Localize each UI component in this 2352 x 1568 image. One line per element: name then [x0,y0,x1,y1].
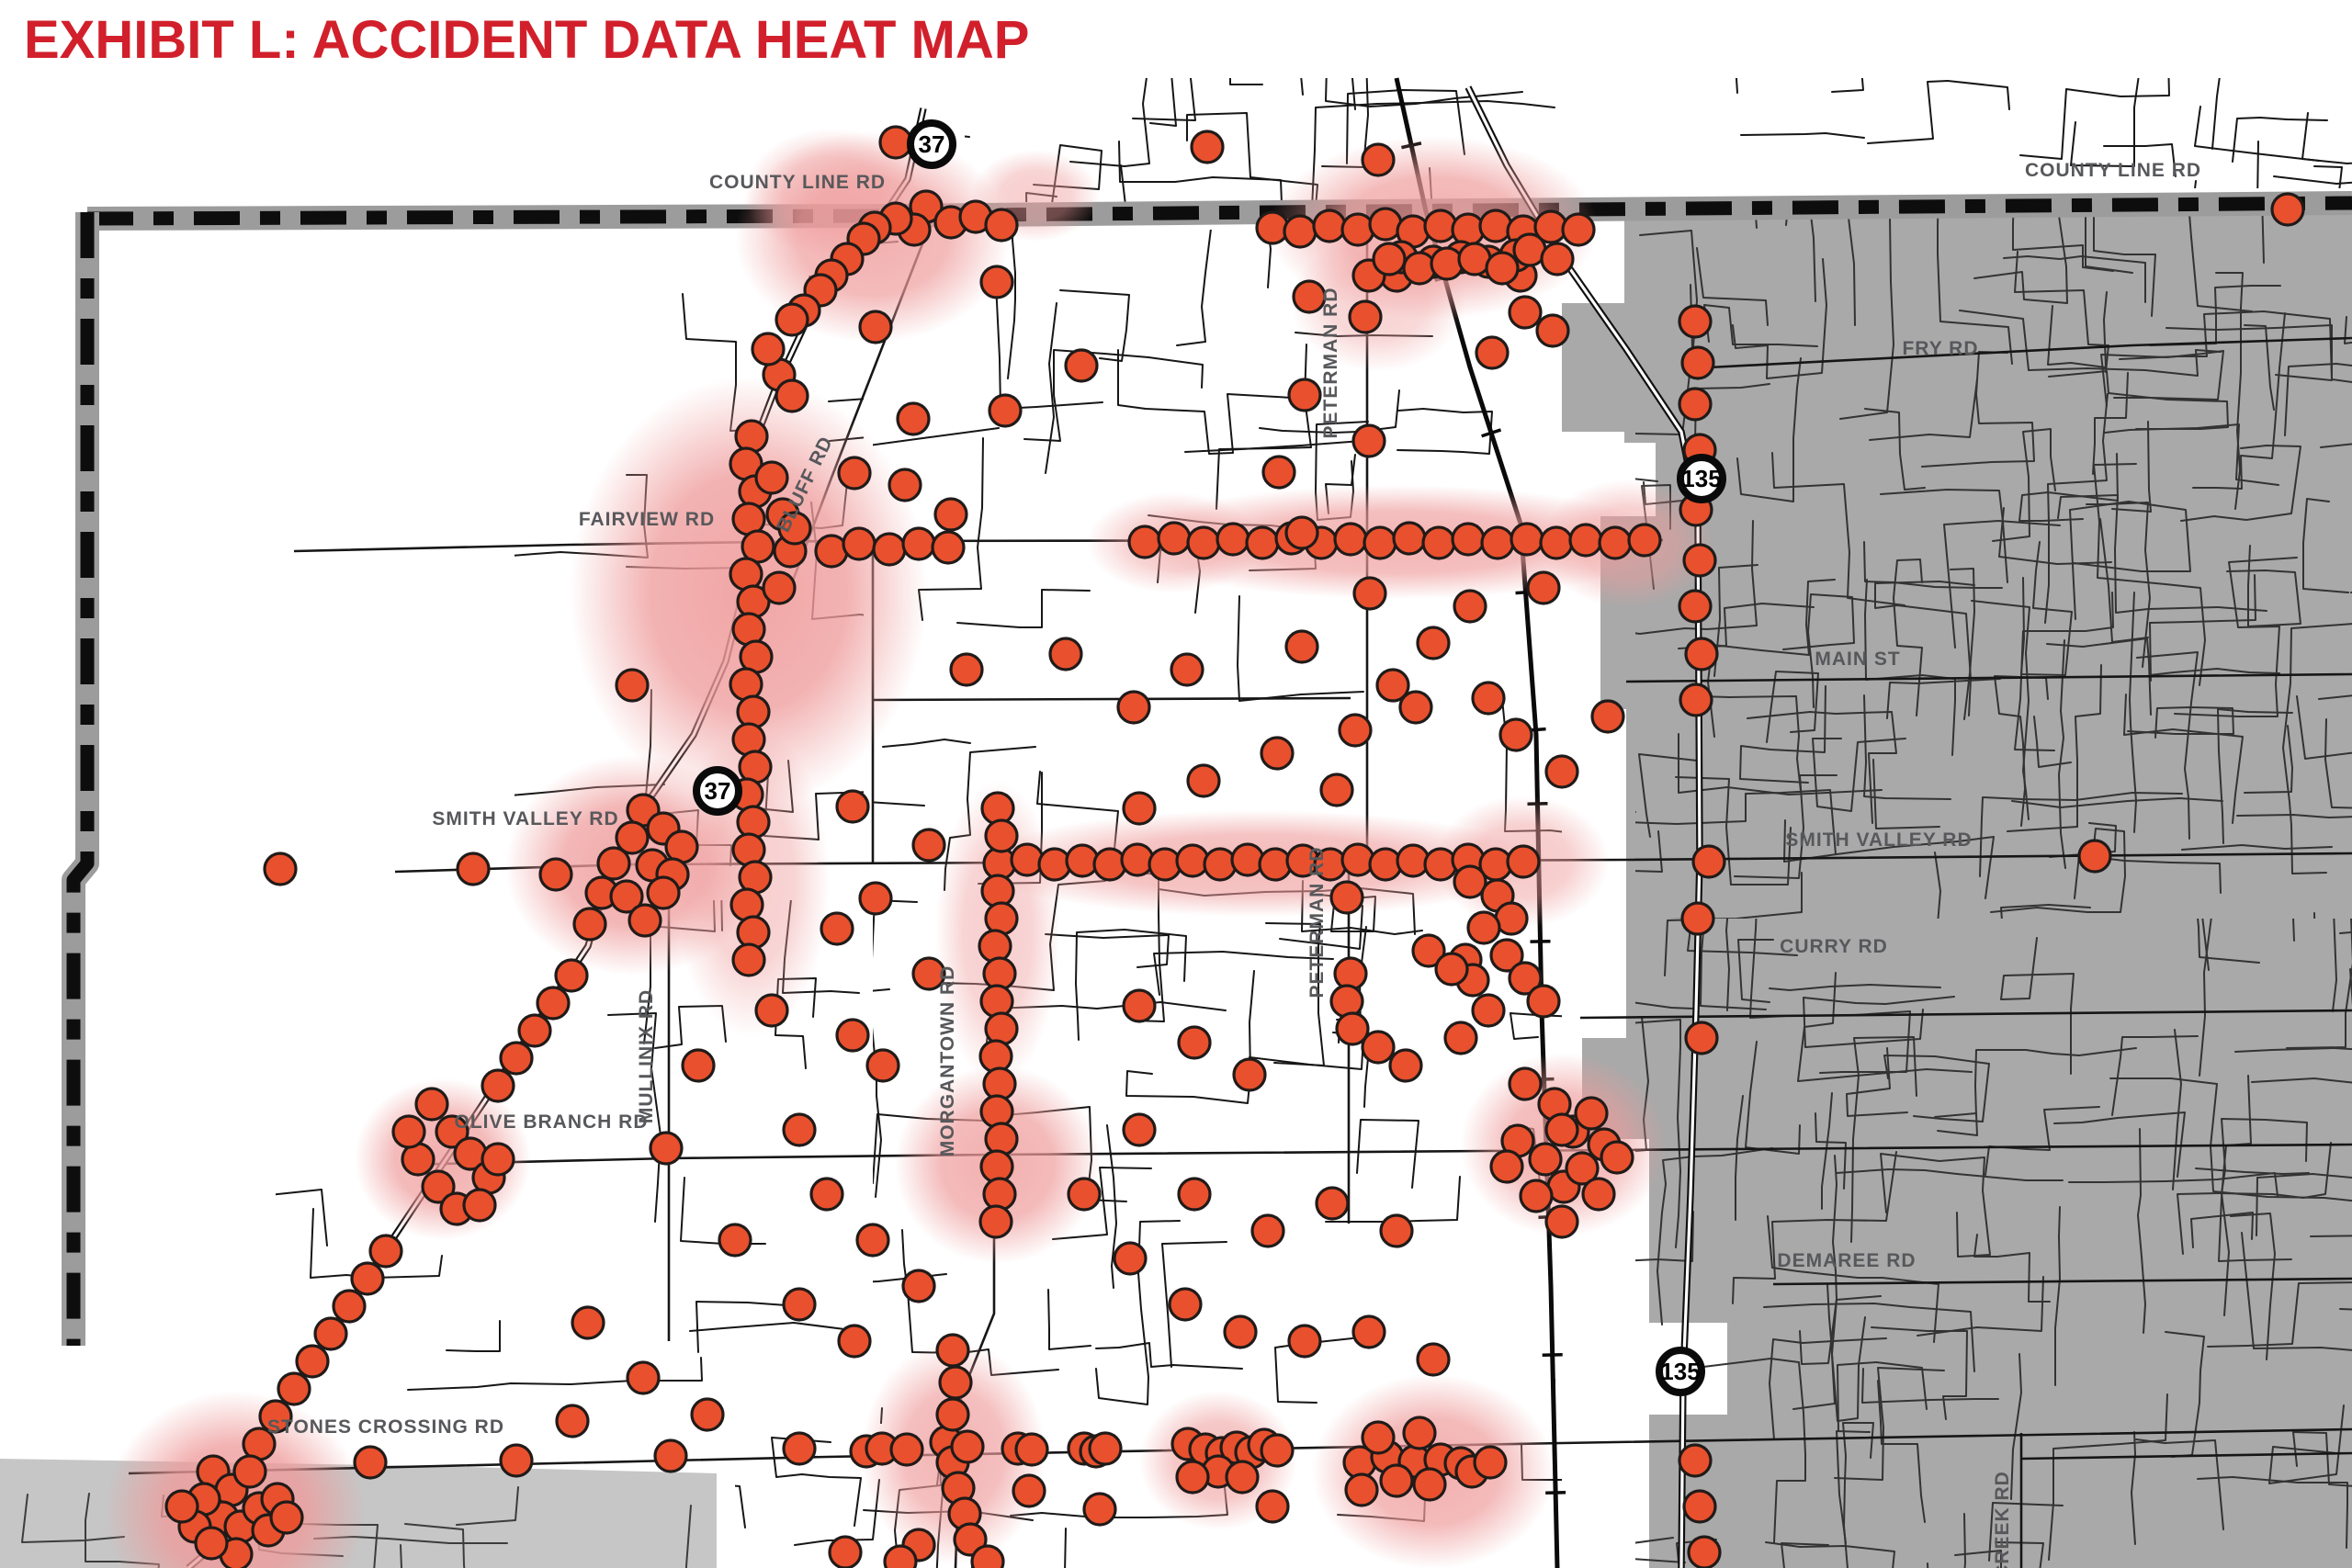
accident-dot [315,1318,346,1349]
page-title: EXHIBIT L: ACCIDENT DATA HEAT MAP [24,9,1029,71]
accident-dot [1363,144,1394,175]
accident-dot [1284,216,1316,247]
accident-dot [880,127,911,158]
accident-dot [733,724,764,755]
accident-dot [972,1546,1003,1568]
accident-dot [989,395,1021,426]
accident-dot [837,791,868,822]
accident-dot [986,1013,1017,1044]
accident-dot [1576,1098,1607,1129]
accident-dot [1069,1179,1100,1210]
road-label: COUNTY LINE RD [2025,160,2201,181]
accident-dot [692,1399,723,1430]
accident-dot [837,1020,868,1051]
accident-dot [1084,1494,1115,1525]
road-label: SMITH VALLEY RD [432,808,618,829]
accident-dot [574,908,605,940]
accident-dot [1546,1114,1577,1145]
accident-dot [501,1043,532,1074]
accident-dot [1340,715,1371,746]
accident-dot [903,528,934,559]
accident-dot [1684,545,1715,576]
accident-dot [540,859,571,890]
accident-dot [234,1456,266,1487]
accident-dot [776,380,808,412]
accident-dot [1363,1422,1394,1453]
accident-dot [297,1346,328,1377]
accident-dot [986,209,1017,241]
accident-dot [1234,1059,1265,1090]
accident-dot [1414,1469,1445,1500]
accident-dot [1475,1447,1506,1478]
accident-dot [952,1431,983,1462]
accident-dot [1124,793,1155,824]
accident-dot [981,986,1012,1017]
accident-dot [1436,953,1467,985]
accident-dot [1491,1151,1522,1182]
accident-dot [1453,524,1484,555]
accident-dot [1537,315,1568,346]
accident-dot [1342,214,1374,245]
route-shield-number: 37 [919,130,945,158]
accident-dot [933,532,964,563]
accident-dot [1521,1180,1552,1212]
accident-dot [1583,1179,1614,1210]
accident-dot [537,987,569,1019]
road-label: MAIN ST [1815,649,1900,670]
exhibit-page: EXHIBIT L: ACCIDENT DATA HEAT MAP COUNTY… [0,0,2352,1568]
accident-dot [1542,243,1573,275]
accident-dot [1261,738,1293,769]
accident-dot [784,1433,815,1464]
accident-dot [1159,523,1190,554]
accident-dot [738,917,769,948]
road-label: CURRY RD [1780,936,1888,957]
accident-dot [1124,1114,1155,1145]
road-label: COUNTY LINE RD [709,172,886,193]
accident-dot [1050,638,1081,670]
accident-dot [940,1367,971,1398]
accident-dot [1679,389,1711,420]
accident-dot [733,834,764,865]
accident-dot [1480,210,1511,242]
accident-dot [1188,527,1219,558]
accident-dot [839,1325,870,1357]
accident-dot [1400,692,1431,723]
accident-dot [830,1537,861,1568]
accident-dot [1286,517,1317,548]
accident-dot [355,1447,386,1478]
accident-dot [1090,1433,1121,1464]
accident-dot [1689,1537,1720,1568]
accident-dot [756,462,787,493]
accident-dot [1124,990,1155,1021]
accident-dot [1204,849,1236,880]
road-label: SMITH VALLEY RD [1785,829,1972,851]
accident-dot [1686,1022,1717,1054]
accident-dot [1679,1445,1711,1476]
accident-dot [1570,525,1601,556]
accident-dot [1528,986,1559,1017]
road-label: DEMAREE RD [1777,1250,1916,1271]
accident-dot [1289,1325,1320,1357]
accident-dot [572,1307,604,1338]
accident-dot [1418,1344,1449,1375]
accident-dot [937,1335,968,1366]
accident-dot [1286,631,1317,662]
accident-dot [986,820,1017,852]
accident-dot [1353,1316,1385,1348]
accident-dot [1510,297,1541,328]
accident-dot [843,528,875,559]
accident-dot [935,499,967,530]
road-label: MULLINIX RD [636,989,657,1123]
accident-dot [1179,1179,1210,1210]
accident-dot [1354,578,1385,609]
accident-dot [1510,1068,1541,1100]
accident-dot [719,1224,751,1256]
route-shield-number: 135 [1681,465,1721,492]
accident-dot [1114,1243,1146,1274]
road-label: FAIRVIEW RD [579,509,715,530]
accident-dot [1122,844,1153,875]
accident-dot [979,931,1011,962]
accident-dot [981,1096,1012,1127]
accident-dot [1066,350,1097,381]
accident-dot [1350,301,1381,333]
accident-dot [1331,882,1363,913]
accident-dot [1013,1475,1045,1506]
accident-dot [1192,131,1223,163]
accident-dot [557,1405,588,1437]
accident-dot [616,670,648,701]
accident-dot [1342,844,1374,875]
accident-dot [763,572,795,604]
accident-dot [1487,253,1518,284]
accident-dot [1247,527,1278,558]
accident-dot [811,1179,842,1210]
accident-dot [885,1546,916,1568]
accident-dot [891,1434,922,1465]
accident-dot [1423,527,1454,558]
accident-dot [1473,682,1504,714]
accident-dot [752,333,784,365]
accident-dot [1425,849,1456,880]
accident-dot [2079,840,2110,872]
accident-dot [629,905,661,936]
accident-dot [1227,1461,1258,1493]
accident-dot [736,421,767,452]
accident-dot [271,1502,302,1533]
road-label: FRY RD [1902,338,1978,359]
accident-dot [482,1144,514,1175]
accident-dot [1528,572,1559,604]
accident-dot [980,1206,1012,1237]
accident-dot [1317,1188,1348,1219]
accident-dot [1225,1316,1256,1348]
accident-dot [1508,846,1539,877]
accident-dot [196,1528,227,1559]
accident-dot [1171,654,1203,685]
accident-dot [1679,306,1711,337]
accident-dot [1261,1435,1293,1466]
accident-dot [1390,1050,1421,1081]
road-label: STONES CROSSING RD [267,1416,504,1438]
accident-dot [501,1445,532,1476]
accident-dot [1016,1434,1047,1465]
accident-dot [1381,1465,1412,1496]
accident-dot [821,913,853,944]
accident-dot [1346,1474,1377,1506]
accident-dot [628,1362,659,1393]
accident-dot [860,311,891,343]
accident-dot [784,1289,815,1320]
accident-dot [2272,194,2303,225]
accident-dot [1693,846,1724,877]
accident-dot [867,1050,899,1081]
accident-dot [898,403,929,434]
accident-dot [1473,995,1504,1026]
accident-dot [598,848,629,879]
accident-dot [951,654,982,685]
accident-dot [986,1123,1017,1155]
accident-dot [519,1015,550,1046]
accident-dot [1314,210,1345,242]
accident-dot [756,995,787,1026]
accident-dot [937,1399,968,1430]
accident-dot [1364,527,1396,558]
accident-dot [370,1235,401,1267]
accident-dot [352,1263,383,1294]
route-shield-number: 37 [705,777,731,805]
accident-dot [874,534,905,565]
accident-dot [1511,524,1543,555]
accident-dot [1353,425,1385,457]
accident-dot [648,877,679,908]
accident-dot [1217,524,1249,555]
accident-dot [1445,1022,1476,1054]
accident-dot [860,883,891,914]
route-shield-number: 135 [1660,1358,1700,1385]
accident-dot [464,1190,495,1221]
accident-dot [1170,1289,1201,1320]
accident-dot [1679,591,1711,622]
accident-dot [1546,756,1577,787]
accident-dot [986,903,1017,934]
accident-dot [1335,524,1366,555]
map-canvas: COUNTY LINE RDCOUNTY LINE RDFRY RDFAIRVI… [0,0,2352,1568]
accident-dot [1331,986,1363,1017]
accident-dot [278,1373,310,1404]
railroad-tick [1543,1355,1563,1356]
accident-dot [1546,1206,1577,1237]
accident-dot [1629,525,1660,556]
accident-dot [1563,214,1594,245]
accident-dot [731,889,763,920]
accident-dot [416,1089,447,1120]
accident-dot [265,853,296,885]
accident-dot [913,829,944,861]
accident-dot [482,1070,514,1101]
accident-dot [1263,457,1295,488]
accident-dot [1682,903,1713,934]
accident-dot [784,1114,815,1145]
road-label: CREEK RD [1992,1471,2013,1568]
accident-dot [1468,912,1499,943]
accident-dot [889,469,921,501]
accident-dot [981,266,1012,298]
road-label: PETERMAN RD [1320,287,1341,438]
road-label: PETERMAN RD [1306,846,1328,998]
accident-dot [1600,527,1631,558]
accident-dot [1601,1142,1633,1173]
accident-dot [683,1050,714,1081]
accident-dot [334,1291,365,1322]
accident-dot [1179,1027,1210,1058]
accident-dot [1684,1491,1715,1522]
accident-dot [738,807,769,838]
accident-dot [1500,719,1532,750]
accident-dot [1482,527,1513,558]
accident-dot [655,1440,686,1472]
accident-dot [393,1116,424,1147]
accident-dot [1257,1491,1288,1522]
accident-dot [1592,701,1623,732]
accident-dot [1129,526,1160,558]
accident-dot [1476,337,1508,368]
accident-dot [1418,627,1449,659]
accident-dot [1686,638,1717,670]
accident-dot [1530,1144,1561,1175]
accident-dot [1381,1215,1412,1247]
road-label: MORGANTOWN RD [937,965,958,1157]
accident-dot [1094,849,1125,880]
accident-dot [458,853,489,885]
accident-dot [1680,684,1712,716]
accident-dot [1289,379,1320,411]
accident-dot [1118,692,1149,723]
accident-dot [1177,1461,1208,1493]
accident-dot [166,1491,198,1522]
accident-dot [1252,1215,1283,1247]
accident-dot [1374,243,1405,275]
accident-dot [1232,844,1263,875]
accident-dot [733,944,764,976]
accident-dot [839,457,870,489]
accident-dot [903,1270,934,1302]
accident-dot [776,304,808,335]
accident-dot [857,1224,888,1256]
accident-dot [1188,765,1219,796]
accident-dot [1541,527,1572,558]
accident-dot [1682,347,1713,378]
accident-dot [1404,253,1435,284]
accident-dot [1454,591,1486,622]
accident-dot [1431,248,1463,279]
accident-dot [1404,1417,1435,1449]
accident-dot [650,1133,682,1164]
accident-dot [1394,523,1425,554]
accident-dot [1321,774,1352,806]
road-label: OLIVE BRANCH RD [454,1111,648,1133]
accident-dot [738,696,769,728]
accident-dot [1363,1032,1394,1063]
accident-dot [556,960,587,991]
accident-dot [1012,844,1043,875]
